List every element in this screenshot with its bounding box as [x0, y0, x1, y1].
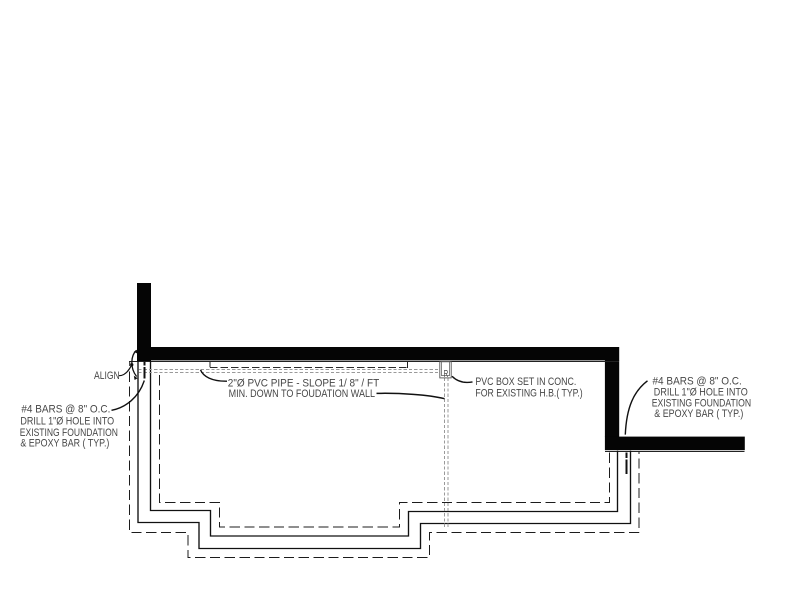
svg-text:& EPOXY BAR ( TYP.): & EPOXY BAR ( TYP.) [654, 408, 743, 420]
svg-text:PVC BOX SET IN CONC.: PVC BOX SET IN CONC. [475, 376, 576, 388]
svg-text:#4 BARS @ 8" O.C.: #4 BARS @ 8" O.C. [21, 403, 110, 415]
svg-text:DRILL 1"Ø HOLE INTO: DRILL 1"Ø HOLE INTO [20, 416, 114, 428]
svg-text:ALIGN: ALIGN [94, 370, 120, 382]
svg-text:FOR EXISTING H.B.( TYP.): FOR EXISTING H.B.( TYP.) [475, 387, 582, 399]
svg-text:MIN. DOWN TO FOUDATION WALL: MIN. DOWN TO FOUDATION WALL [229, 388, 375, 400]
svg-text:R: R [444, 368, 449, 380]
svg-text:& EPOXY BAR ( TYP.): & EPOXY BAR ( TYP.) [20, 437, 109, 449]
